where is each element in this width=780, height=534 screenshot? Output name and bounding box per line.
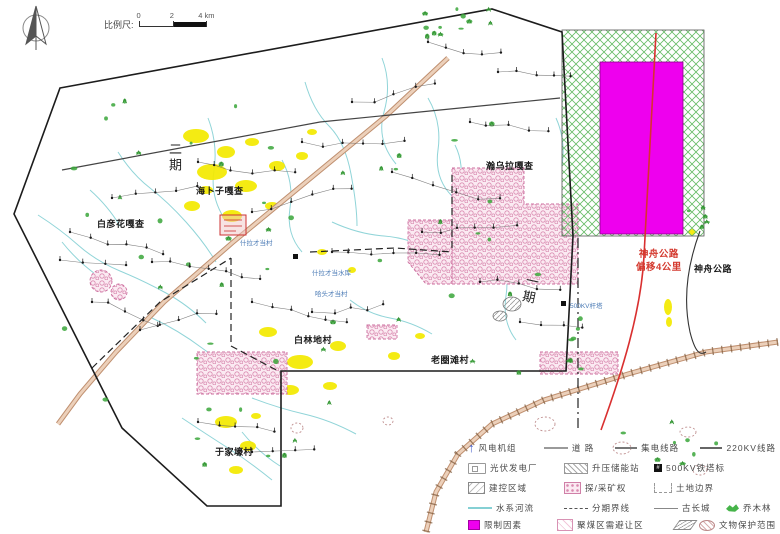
restriction-factor-block <box>600 62 683 234</box>
hv-line-icon <box>700 447 722 449</box>
legend-item-phase-line: 分期界线 <box>564 502 654 514</box>
tower-mark-icon: # <box>654 464 662 472</box>
legend-item-wind-turbine: ↑ 风电机组 <box>468 442 544 454</box>
arbor-forest-icon <box>726 504 739 513</box>
river-icon <box>468 507 492 509</box>
shenzhou-offset-line2: 偏移4公里 <box>636 261 682 274</box>
legend-label: 光伏发电厂 <box>490 462 538 474</box>
village-label-hatou: 哈头才当村 <box>315 288 348 298</box>
legend-label: 探/采矿权 <box>585 482 626 494</box>
legend-item-500kv-tower: # 500KV铁塔标 <box>654 462 725 474</box>
legend-label: 聚煤区需避让区 <box>577 519 644 531</box>
scale-bar: 比例尺: 0 2 4 km <box>104 12 207 30</box>
tower-label: 500KV杆塔 <box>570 300 603 310</box>
restricted-zone <box>562 30 704 236</box>
shenzhou-offset-line1: 神舟公路 <box>636 248 682 261</box>
shenzhou-offset-label: 神舟公路 偏移4公里 <box>636 248 682 275</box>
scale-tick-4km: 4 km <box>198 11 214 20</box>
legend-label: 土地边界 <box>676 482 714 494</box>
legend-label: 文物保护范围 <box>719 519 776 531</box>
scale-tick-0: 0 <box>137 11 141 20</box>
legend-item-booster-station: 升压储能站 <box>564 462 654 474</box>
legend-item-river: 水系河流 <box>468 502 564 514</box>
phase2-label: 二期 <box>165 142 184 174</box>
shenzhou-road-existing <box>687 231 706 353</box>
land-boundary-icon <box>654 483 672 493</box>
village-label-bailindi: 白林地村 <box>294 333 332 346</box>
site-plan-map: 比例尺: 0 2 4 km 二期 一期 海卜子嘎查 白彦花嘎查 瀚乌拉嘎查 白林… <box>0 0 780 534</box>
legend-item-road: 道 路 <box>544 442 615 454</box>
legend: ↑ 风电机组 道 路 集电线路 220KV线路 光伏发电厂 升压储能站 # 50… <box>468 442 776 534</box>
legend-item-arbor-forest: 乔木林 <box>726 502 772 514</box>
legend-label: 建控区域 <box>489 482 527 494</box>
legend-label: 道 路 <box>572 442 594 454</box>
shenzhou-road-label: 神舟公路 <box>694 262 732 275</box>
scale-bar-filled-segment <box>173 22 207 27</box>
scale-tickmark <box>139 21 140 27</box>
road-line-icon <box>544 447 568 449</box>
legend-label: 风电机组 <box>479 442 517 454</box>
legend-label: 乔木林 <box>743 502 772 514</box>
coal-avoid-icon <box>557 519 573 531</box>
legend-item-pv-plant: 光伏发电厂 <box>468 462 564 474</box>
scale-tick-2: 2 <box>170 11 174 20</box>
legend-row-1: ↑ 风电机组 道 路 集电线路 220KV线路 <box>468 442 776 454</box>
legend-item-heritage-area: 文物保护范围 <box>676 519 776 531</box>
village-label-laoquantan: 老圈滩村 <box>431 353 469 366</box>
pv-plant-icon <box>468 463 486 474</box>
legend-label: 220KV线路 <box>726 442 776 454</box>
legend-row-2: 光伏发电厂 升压储能站 # 500KV铁塔标 <box>468 462 776 474</box>
control-area-icon <box>468 482 485 494</box>
legend-item-control-area: 建控区域 <box>468 482 564 494</box>
red-stamp <box>220 215 246 235</box>
legend-label: 500KV铁塔标 <box>666 462 725 474</box>
booster-station-icon <box>564 463 588 474</box>
legend-row-3: 建控区域 探/采矿权 土地边界 <box>468 482 776 494</box>
village-label-baiyanhua: 白彦花嘎查 <box>97 217 145 230</box>
scale-bar-label: 比例尺: <box>104 20 134 30</box>
heritage-parallelogram-icon <box>672 520 697 530</box>
legend-label: 分期界线 <box>592 502 630 514</box>
legend-label: 集电线路 <box>641 442 679 454</box>
legend-label: 水系河流 <box>496 502 534 514</box>
collector-line-icon <box>615 447 637 449</box>
north-arrow-icon <box>23 6 49 50</box>
scale-bar-graphic: 0 2 4 km <box>139 12 207 30</box>
legend-item-220kv-line: 220KV线路 <box>700 442 776 454</box>
legend-item-land-boundary: 土地边界 <box>654 482 714 494</box>
legend-item-collector-line: 集电线路 <box>615 442 700 454</box>
legend-row-4: 水系河流 分期界线 古长城 乔木林 <box>468 502 776 514</box>
legend-label: 限制因素 <box>484 519 522 531</box>
legend-item-great-wall: 古长城 <box>654 502 726 514</box>
village-label-haibuzi: 海卜子嘎查 <box>196 184 244 197</box>
scale-tickmark <box>173 21 174 27</box>
village-label-shila: 什拉才当村 <box>240 237 273 247</box>
legend-item-coal-avoid: 聚煤区需避让区 <box>557 519 676 531</box>
legend-label: 升压储能站 <box>592 462 640 474</box>
village-label-yujiahao: 于家壕村 <box>215 445 253 458</box>
village-label-hanwula: 瀚乌拉嘎查 <box>486 159 534 172</box>
reservoir-label: 什拉才当水库 <box>312 267 351 277</box>
legend-item-mining-right: 探/采矿权 <box>564 482 654 494</box>
legend-label: 古长城 <box>682 502 711 514</box>
scale-tickmark <box>206 21 207 27</box>
great-wall-icon <box>654 508 678 509</box>
restrict-factor-icon <box>468 520 480 530</box>
mining-right-icon <box>564 482 581 494</box>
phase-line-icon <box>564 508 588 509</box>
legend-row-5: 限制因素 聚煤区需避让区 文物保护范围 <box>468 519 776 531</box>
wind-turbine-icon: ↑ <box>468 443 475 453</box>
heritage-ellipse-icon <box>699 520 715 531</box>
legend-item-restrict-factor: 限制因素 <box>468 519 557 531</box>
